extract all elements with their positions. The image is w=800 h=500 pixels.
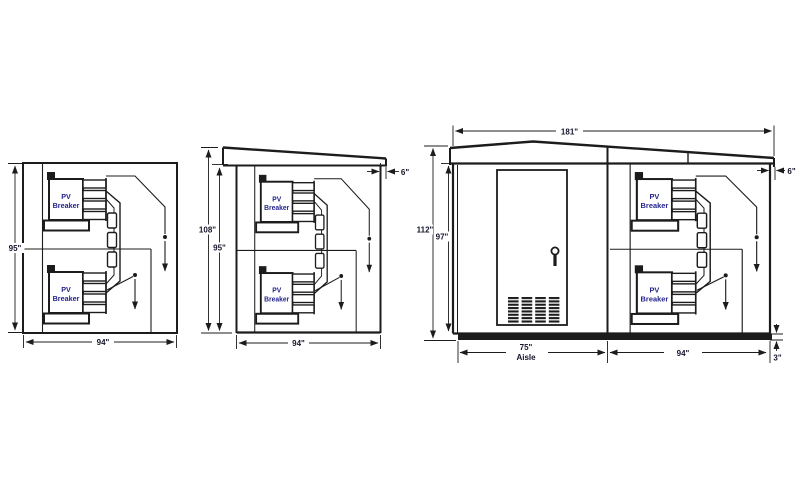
dim-switchgear-94: 94": [610, 341, 770, 363]
rear-section-view: 95" 94": [6, 163, 178, 348]
side-elevation-view: 108" 95" 94" 6": [197, 148, 409, 350]
dim-width-94: 94": [24, 335, 177, 348]
dim-depth-94: 94": [237, 335, 381, 349]
technical-drawing: PV Breaker PV Breaker: [0, 0, 800, 500]
dim-label-overall-height: 108": [199, 226, 216, 235]
drawing-canvas: PV Breaker PV Breaker: [0, 0, 800, 500]
dim-overall-width-181: 181": [453, 126, 774, 157]
roof: [223, 148, 386, 167]
dim-label-base-height: 3": [773, 354, 781, 363]
dim-label-width: 94": [97, 338, 110, 347]
dim-label-aisle-caption: Aisle: [516, 353, 536, 362]
switchgear-bay-instance: [610, 163, 759, 334]
base-skid: [458, 334, 772, 340]
dim-base-3: 3": [770, 324, 783, 363]
extension-lines: [453, 126, 774, 157]
dim-label-aisle-width: 75": [520, 343, 533, 352]
extension-lines: [201, 148, 232, 334]
door-handle-icon: [551, 247, 558, 254]
access-door: [497, 170, 567, 325]
dim-roof-overhang-6: 6": [757, 167, 796, 180]
dim-label-overall-height: 112": [417, 226, 434, 235]
roof-slope-line: [223, 148, 386, 159]
dim-label-wall-height: 95": [213, 244, 226, 253]
extension-lines: [424, 146, 456, 341]
dim-label-roof-overhang: 6": [401, 168, 409, 177]
ventilation-louvers: [508, 297, 561, 324]
dim-aisle-75: 75" Aisle: [458, 341, 608, 363]
roof-slope-line: [450, 142, 774, 159]
front-elevation-view: 181" 112" 97" 75" Aisle 94": [417, 126, 796, 364]
dim-label-overall-width: 181": [561, 128, 578, 137]
dim-height-95: 95": [6, 164, 25, 333]
dim-label-height: 95": [9, 244, 22, 253]
dim-wall-height-95: 95": [211, 165, 229, 331]
dim-label-depth: 94": [292, 339, 305, 348]
dim-wall-height-97: 97": [435, 164, 452, 332]
dim-label-roof-overhang: 6": [787, 167, 795, 176]
door-handle-stem: [553, 255, 556, 267]
dim-label-wall-height: 97": [436, 233, 449, 242]
switchgear-bay-instance: [237, 166, 372, 333]
dim-label-switchgear-depth: 94": [677, 349, 690, 358]
dim-overall-height-108: 108": [197, 148, 232, 334]
dim-overall-height-112: 112": [417, 146, 457, 341]
roof: [450, 142, 774, 168]
